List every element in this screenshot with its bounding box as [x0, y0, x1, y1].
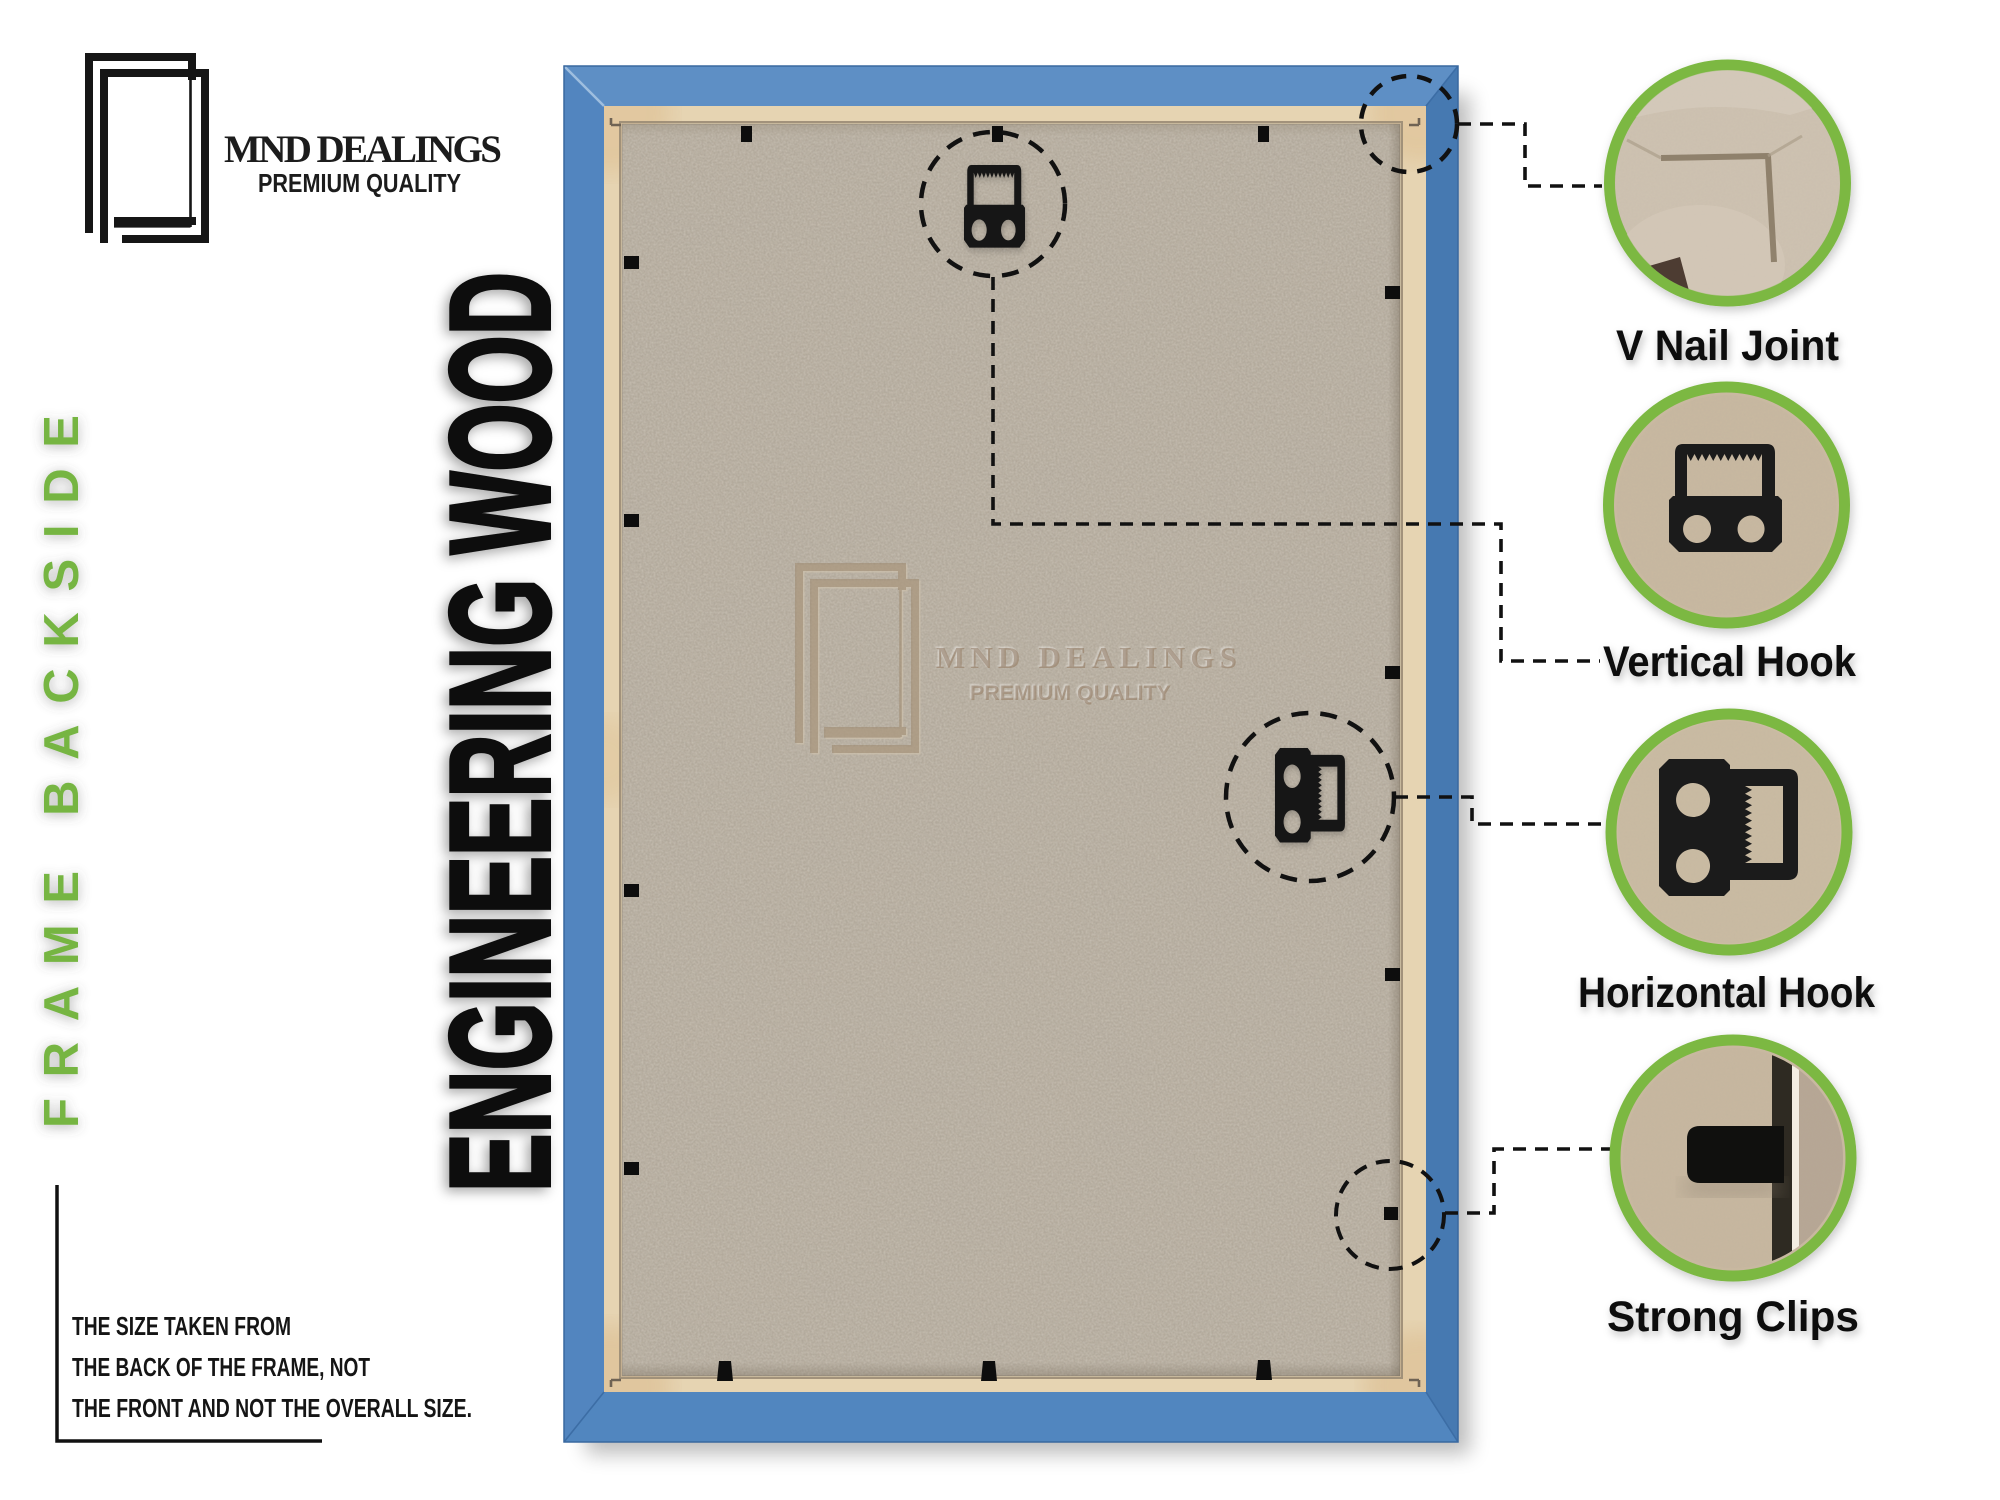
svg-text:MND DEALINGS: MND DEALINGS: [224, 128, 502, 171]
svg-text:MND DEALINGS: MND DEALINGS: [936, 640, 1237, 675]
svg-text:ENGINEERING WOOD: ENGINEERING WOOD: [421, 272, 580, 1192]
svg-text:THE SIZE TAKEN FROM: THE SIZE TAKEN FROM: [72, 1311, 291, 1341]
svg-text:THE BACK OF THE FRAME, NOT: THE BACK OF THE FRAME, NOT: [72, 1352, 370, 1382]
svg-text:V Nail Joint: V Nail Joint: [1616, 322, 1839, 370]
svg-text:THE FRONT AND NOT THE OVERALL: THE FRONT AND NOT THE OVERALL SIZE.: [72, 1393, 472, 1423]
svg-text:Strong Clips: Strong Clips: [1607, 1293, 1859, 1341]
svg-text:Vertical Hook: Vertical Hook: [1603, 638, 1856, 686]
svg-text:PREMIUM QUALITY: PREMIUM QUALITY: [970, 682, 1171, 705]
svg-text:Horizontal Hook: Horizontal Hook: [1578, 969, 1875, 1017]
svg-text:PREMIUM QUALITY: PREMIUM QUALITY: [258, 168, 461, 198]
